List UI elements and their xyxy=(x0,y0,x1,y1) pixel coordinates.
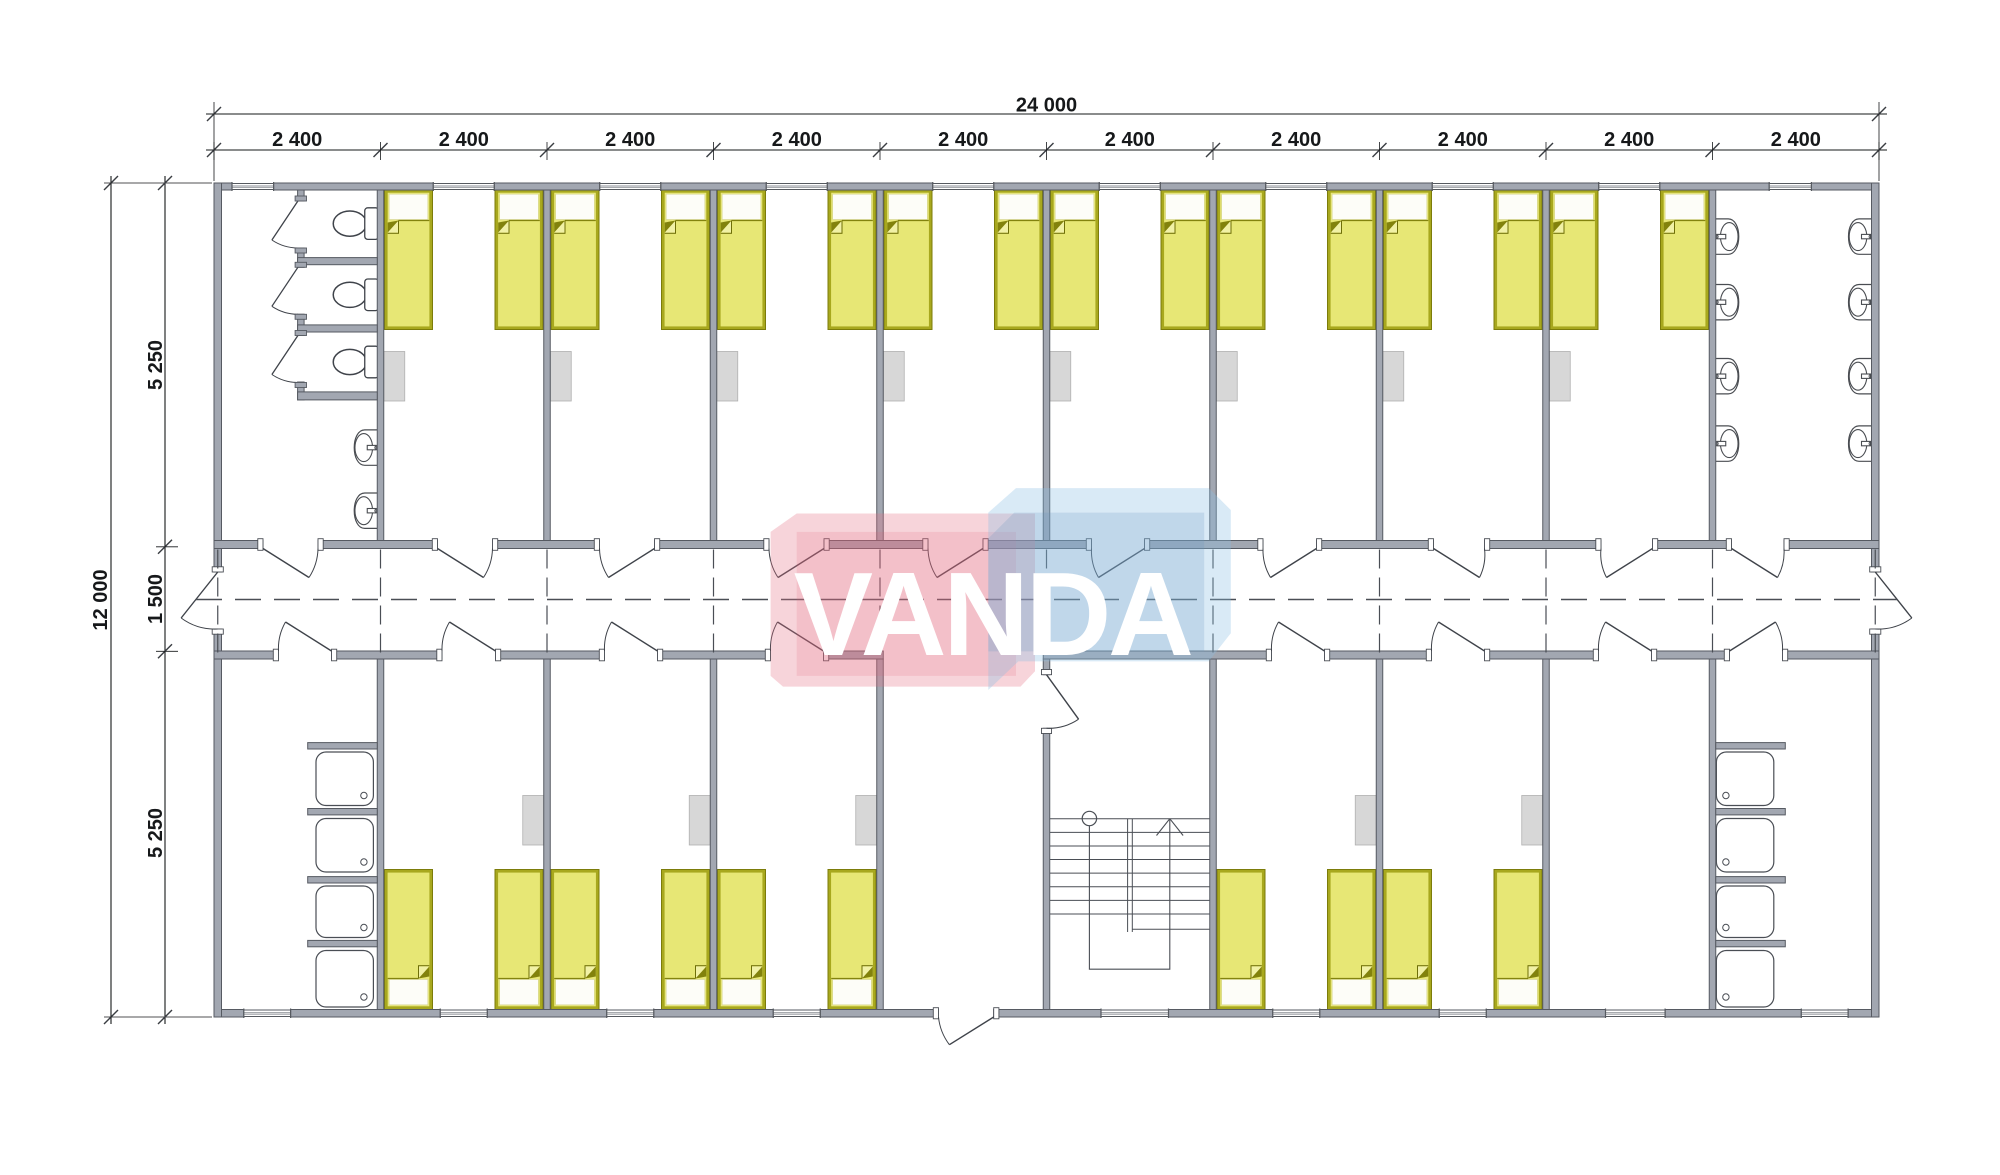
svg-text:12 000: 12 000 xyxy=(90,569,112,630)
svg-text:2 400: 2 400 xyxy=(605,129,655,151)
svg-text:VANDA: VANDA xyxy=(794,548,1191,681)
svg-text:2 400: 2 400 xyxy=(1438,129,1488,151)
svg-text:2 400: 2 400 xyxy=(938,129,988,151)
svg-text:24 000: 24 000 xyxy=(1016,95,1077,117)
svg-text:1 500: 1 500 xyxy=(145,574,167,624)
svg-text:2 400: 2 400 xyxy=(1771,129,1821,151)
svg-text:5 250: 5 250 xyxy=(145,340,167,390)
svg-text:2 400: 2 400 xyxy=(1604,129,1654,151)
svg-text:2 400: 2 400 xyxy=(772,129,822,151)
svg-text:2 400: 2 400 xyxy=(272,129,322,151)
svg-text:2 400: 2 400 xyxy=(1105,129,1155,151)
svg-text:2 400: 2 400 xyxy=(439,129,489,151)
svg-text:5 250: 5 250 xyxy=(145,808,167,858)
svg-text:2 400: 2 400 xyxy=(1271,129,1321,151)
